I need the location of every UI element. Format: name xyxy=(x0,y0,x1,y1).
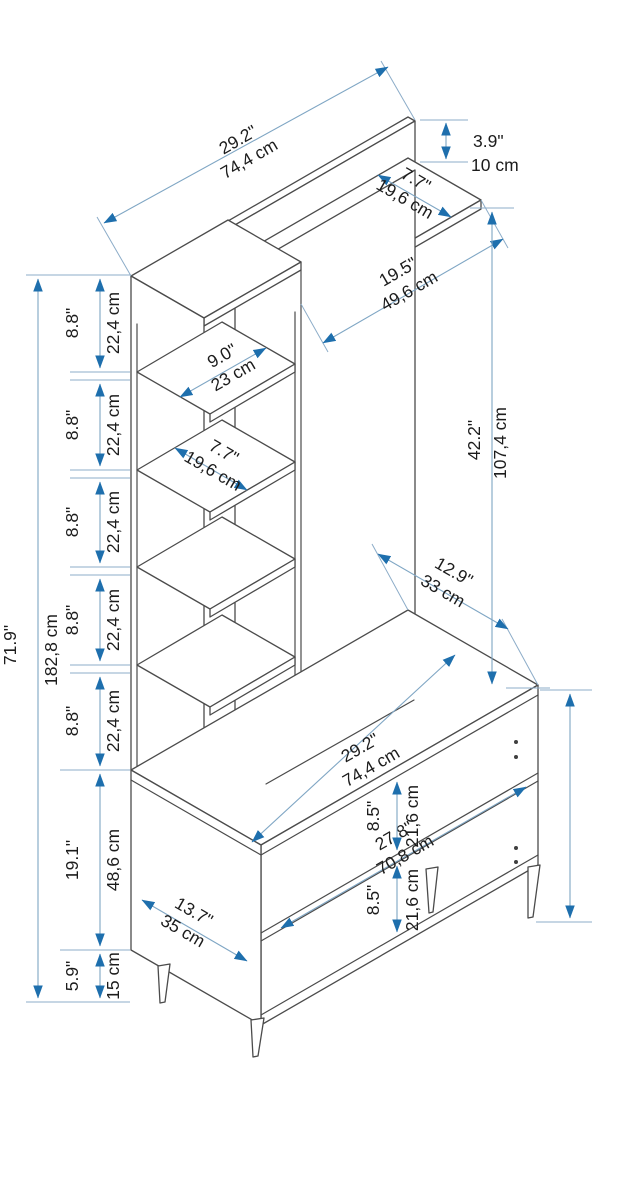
dimension-diagram: 29.2" 74,4 cm 3.9" 10 cm 7.7" 19,6 cm 19… xyxy=(0,0,617,1200)
svg-text:8.8": 8.8" xyxy=(62,706,82,737)
dim-label: 107,4 cm xyxy=(490,407,510,479)
svg-text:8.8": 8.8" xyxy=(62,410,82,441)
svg-text:15 cm: 15 cm xyxy=(103,952,123,1000)
svg-text:8.8": 8.8" xyxy=(62,605,82,636)
svg-text:5.9": 5.9" xyxy=(62,961,82,992)
svg-text:22,4 cm: 22,4 cm xyxy=(103,690,123,752)
dim-gap-3: 8.8" 22,4 cm xyxy=(62,491,123,553)
svg-text:8.8": 8.8" xyxy=(62,507,82,538)
dim-panel-height: 42.2" 107,4 cm xyxy=(464,208,550,688)
dim-right-height-line xyxy=(536,690,592,922)
dim-rail-height: 3.9" 10 cm xyxy=(420,120,519,175)
dim-label: 21,6 cm xyxy=(402,869,422,931)
dim-label: 182,8 cm xyxy=(41,614,61,686)
leg-front-left xyxy=(251,1018,264,1057)
diagram-canvas: 29.2" 74,4 cm 3.9" 10 cm 7.7" 19,6 cm 19… xyxy=(0,0,617,1200)
dim-gap-2: 8.8" 22,4 cm xyxy=(62,394,123,456)
dim-gap-4: 8.8" 22,4 cm xyxy=(62,589,123,651)
dim-label: 8.5" xyxy=(363,885,383,916)
dim-cabinet-height: 19.1" 48,6 cm xyxy=(62,829,123,891)
dim-label: 10 cm xyxy=(471,155,519,175)
svg-text:22,4 cm: 22,4 cm xyxy=(103,491,123,553)
dim-total-height: 71.9" 182,8 cm xyxy=(0,279,61,998)
svg-text:22,4 cm: 22,4 cm xyxy=(103,394,123,456)
leg-front-right xyxy=(528,865,540,918)
svg-text:48,6 cm: 48,6 cm xyxy=(103,829,123,891)
dim-label: 3.9" xyxy=(473,131,504,151)
dim-leg-height: 5.9" 15 cm xyxy=(62,952,123,1000)
dim-label: 71.9" xyxy=(0,625,20,665)
dim-label: 8.5" xyxy=(363,801,383,832)
svg-text:19.1": 19.1" xyxy=(62,840,82,880)
svg-text:22,4 cm: 22,4 cm xyxy=(103,292,123,354)
svg-text:22,4 cm: 22,4 cm xyxy=(103,589,123,651)
dim-label: 21,6 cm xyxy=(402,785,422,847)
dim-gap-1: 8.8" 22,4 cm xyxy=(62,292,123,354)
dim-label: 42.2" xyxy=(464,420,484,460)
leg-back-left xyxy=(158,964,170,1003)
dim-gap-5: 8.8" 22,4 cm xyxy=(62,690,123,752)
svg-text:8.8": 8.8" xyxy=(62,308,82,339)
